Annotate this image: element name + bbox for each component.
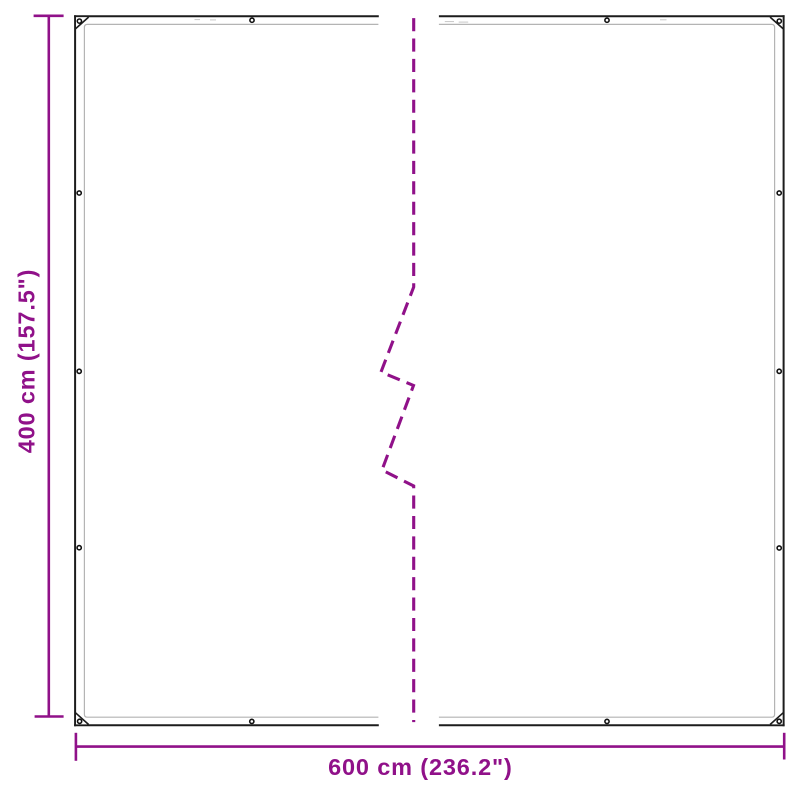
svg-text:400 cm (157.5"): 400 cm (157.5") [13,269,39,454]
svg-text:600 cm (236.2"): 600 cm (236.2") [328,754,513,780]
